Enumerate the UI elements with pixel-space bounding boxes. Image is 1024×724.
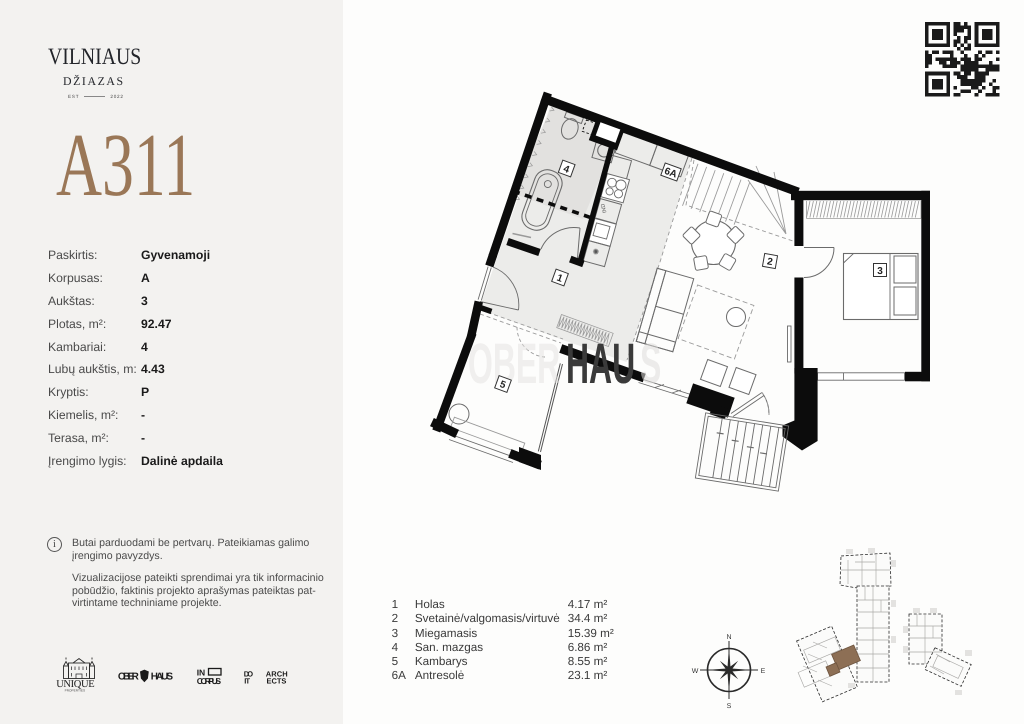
- svg-text:S: S: [727, 703, 732, 710]
- svg-text:OBER: OBER: [468, 332, 560, 396]
- svg-text:IND: IND: [600, 203, 608, 214]
- svg-text:3: 3: [877, 266, 883, 277]
- svg-text:1: 1: [555, 273, 564, 285]
- svg-text:W: W: [692, 668, 699, 675]
- svg-text:2: 2: [766, 256, 774, 268]
- svg-text:✺: ✺: [593, 248, 600, 257]
- svg-text:HAU: HAU: [566, 332, 635, 396]
- svg-text:4: 4: [562, 164, 571, 176]
- svg-text:S: S: [640, 332, 661, 396]
- svg-text:N: N: [726, 634, 731, 641]
- svg-text:6A: 6A: [663, 166, 679, 181]
- svg-text:5: 5: [498, 379, 507, 391]
- svg-text:E: E: [761, 668, 766, 675]
